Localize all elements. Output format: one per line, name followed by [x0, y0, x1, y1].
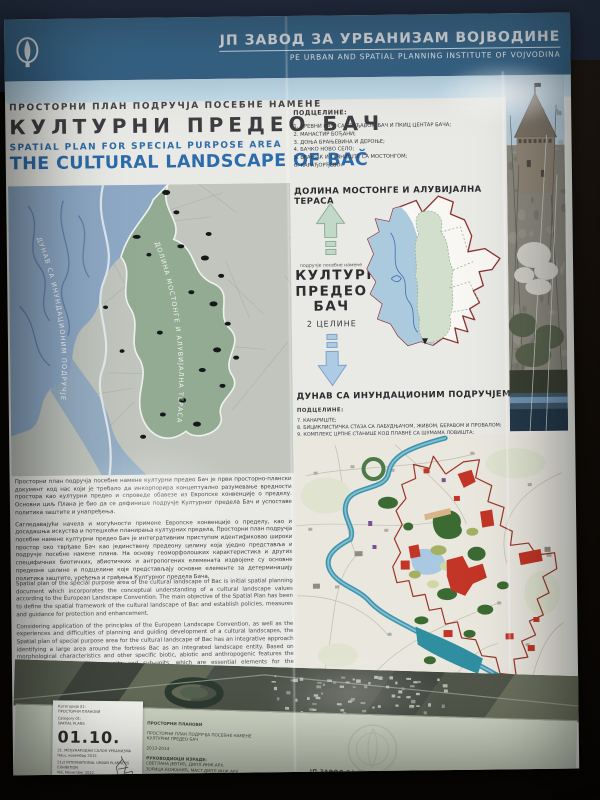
- poster-title-en: THE CULTURAL LANDSCAPE OF BAČ: [10, 151, 294, 174]
- description-serbian: Просторни план подручја посебне намене к…: [15, 476, 293, 588]
- watermark-logo-icon: [344, 720, 402, 775]
- subunits-heading-2: ПОДЦЕЛИНЕ:: [297, 405, 515, 414]
- fortress-sketch-icon: [108, 755, 138, 775]
- award-number: 01.10.: [57, 728, 137, 748]
- institute-logo-icon: [14, 35, 40, 69]
- fortress-photo: [506, 75, 568, 432]
- zone-label-column: подручје посебне намене КУЛТУРНИ ПРЕДЕО …: [294, 203, 368, 391]
- subunits-heading: ПОДЦЕЛИНЕ:: [293, 107, 513, 117]
- up-arrow-icon: [315, 203, 346, 255]
- photo-of-poster: ЈП ЗАВОД ЗА УРБАНИЗАМ ВОЈВОДИНЕ PE URBAN…: [0, 0, 600, 800]
- heading-danube: ДУНАВ СА ИНУНДАЦИОНИМ ПОДРУЧЈЕМ: [297, 389, 537, 402]
- poster: ЈП ЗАВОД ЗА УРБАНИЗАМ ВОЈВОДИНЕ PE URBAN…: [4, 13, 579, 776]
- award-card: Категорија 01: ПРОСТОРНИ ПЛАНОВИ Categor…: [52, 700, 143, 775]
- paragraph-sr-1: Просторни план подручја посебне намене к…: [15, 476, 292, 518]
- title-block: ПРОСТОРНИ ПЛАН ПОДРУЧЈА ПОСЕБНЕ НАМЕНЕ К…: [9, 100, 294, 174]
- planning-map: [295, 433, 564, 696]
- award-category-sr2: ПРОСТОРНИ ПЛАНОВИ: [58, 709, 138, 715]
- paragraph-sr-2: Сагледавајући начела и могућности примен…: [15, 519, 293, 584]
- subunits-list-top: ПОДЦЕЛИНЕ: 1. ДРЕВНИ БАЧ, СА ТВРЂАВОМ БА…: [293, 107, 514, 170]
- zone-subtitle: 2 ЦЕЛИНЕ: [296, 319, 368, 329]
- subunit-item: 6. КАРАЂОРЂЕВО.: [294, 160, 514, 170]
- zone-name-line3: БАЧ: [295, 299, 367, 315]
- zone-name-line2: ПРЕДЕО: [295, 284, 367, 300]
- down-arrow-icon: [317, 333, 348, 387]
- topographic-map: ДУНАВ СА ИНУНДАЦИОНИМ ПОДРУЧЈЕМ ДОЛИНА М…: [8, 183, 294, 476]
- award-category-en2: SPATIAL PLANS: [58, 721, 138, 727]
- poster-title-sr: КУЛТУРНИ ПРЕДЕО БАЧ: [9, 112, 293, 139]
- zone-name-line1: КУЛТУРНИ: [295, 268, 367, 284]
- header-org-name-sr: ЈП ЗАВОД ЗА УРБАНИЗАМ ВОЈВОДИНЕ: [220, 29, 561, 52]
- schematic-zone-map: [360, 191, 514, 361]
- paragraph-en-1: Spatial plan of the special purpose area…: [16, 578, 293, 620]
- header-org-name-en: PE URBAN AND SPATIAL PLANNING INSTITUTE …: [220, 50, 561, 63]
- plan-type-sr: ПРОСТОРНИ ПЛАН ПОДРУЧЈА ПОСЕБНЕ НАМЕНЕ: [9, 100, 293, 113]
- credits-block: ПРОСТОРНИ ПЛАНОВИ ПРОСТОРНИ ПЛАН ПОДРУЧЈ…: [145, 720, 297, 775]
